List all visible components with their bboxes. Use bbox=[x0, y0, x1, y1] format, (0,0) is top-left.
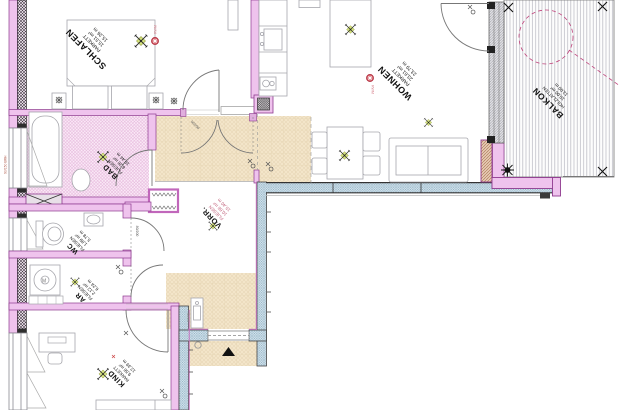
svg-text:RWM: RWM bbox=[154, 25, 158, 34]
svg-text:90/150 BRH: 90/150 BRH bbox=[4, 155, 8, 174]
svg-text:K-TV: K-TV bbox=[24, 314, 28, 322]
svg-text:RWM: RWM bbox=[371, 85, 375, 94]
svg-text:GARD.: GARD. bbox=[187, 312, 191, 322]
svg-text:M: M bbox=[42, 279, 46, 285]
svg-text:80/200: 80/200 bbox=[135, 226, 139, 237]
svg-text:E-VK: E-VK bbox=[24, 282, 28, 290]
